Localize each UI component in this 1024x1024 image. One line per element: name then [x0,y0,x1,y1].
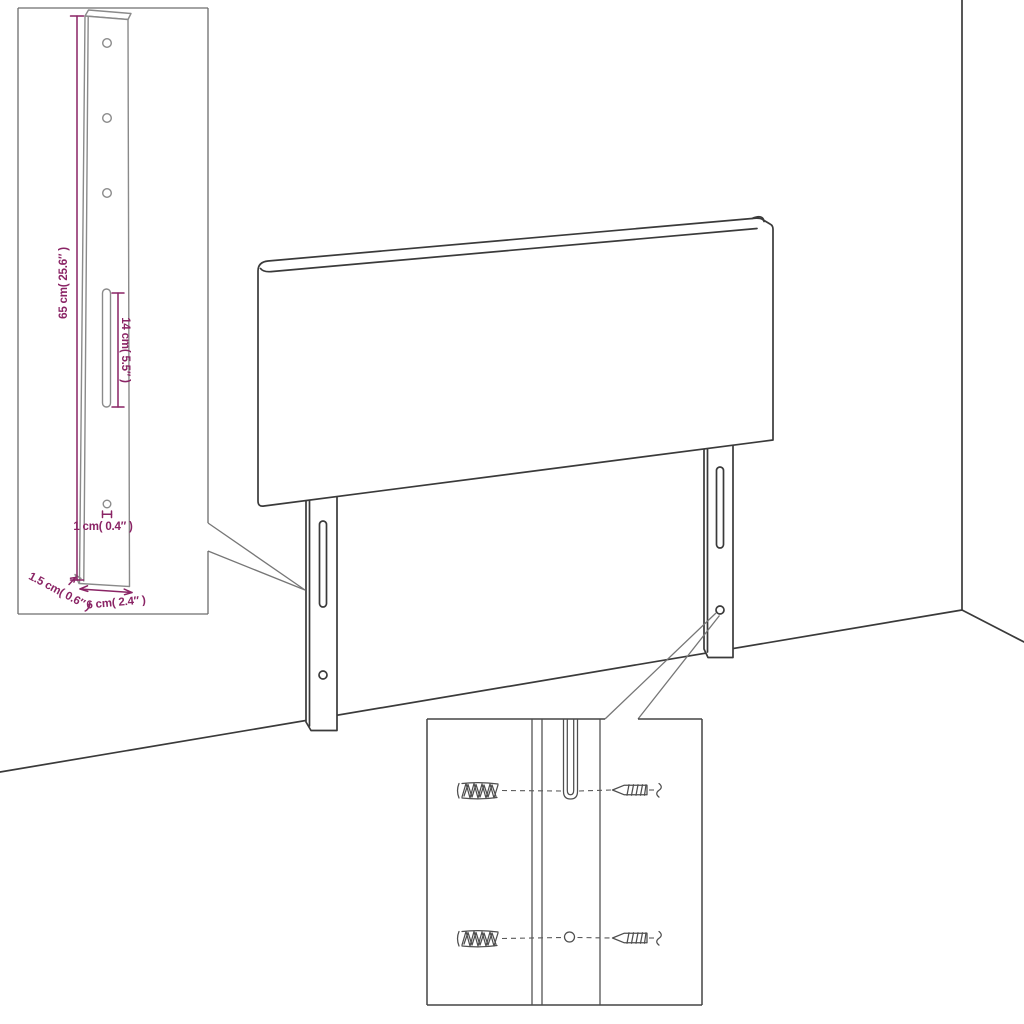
wall-plug-icon [458,783,499,799]
floor-line-left [0,610,962,772]
floor-line-right [962,610,1024,642]
leg-detail-inset: 65 cm( 25.6″ ) 14 cm( 5.5″ ) 1 cm( 0.4″ … [18,8,208,614]
callout-line [605,613,716,719]
screw-icon [613,784,662,798]
screw-drive-squiggle [657,932,662,946]
dimension-width-label: 6 cm( 2.4″ ) [86,594,147,611]
leader-slot-to-screw [579,790,611,791]
dimension-height-label: 65 cm( 25.6″ ) [58,247,70,319]
leg-strip-slot-outer [564,719,578,799]
dimension-slot-label: 14 cm( 5.5″ ) [119,317,131,383]
hardware-callout-lines [605,613,720,719]
leg-detail-callout-lines [208,523,305,590]
wall-plug-icon [458,931,499,947]
leg-detail-drawing [75,10,131,587]
dimension-hole-label: 1 cm( 0.4″ ) [73,521,133,533]
leader-plug-to-hole [502,938,562,939]
hardware-inset-border [427,719,702,1005]
right-mounting-leg [704,436,733,658]
hardware-row-upper [458,783,662,799]
left-mounting-leg [306,467,337,731]
headboard-panel-face [258,218,773,506]
leader-plug-to-slot [502,791,562,792]
leg-strip-slot-inner [567,719,573,795]
screw-drive-squiggle [657,784,662,798]
leg-strip-detail [532,719,600,1005]
mounting-hardware-inset [427,719,702,1005]
screw-icon [613,932,662,946]
headboard-panel [258,217,773,506]
dimension-width: 6 cm( 2.4″ ) [80,586,147,612]
product-dimension-diagram: 65 cm( 25.6″ ) 14 cm( 5.5″ ) 1 cm( 0.4″ … [0,0,1024,1024]
callout-line [638,616,720,720]
leg-strip-hole [565,932,575,942]
left-leg-body [306,467,337,731]
leader-hole-to-screw [578,938,612,939]
hardware-row-lower [458,931,662,947]
